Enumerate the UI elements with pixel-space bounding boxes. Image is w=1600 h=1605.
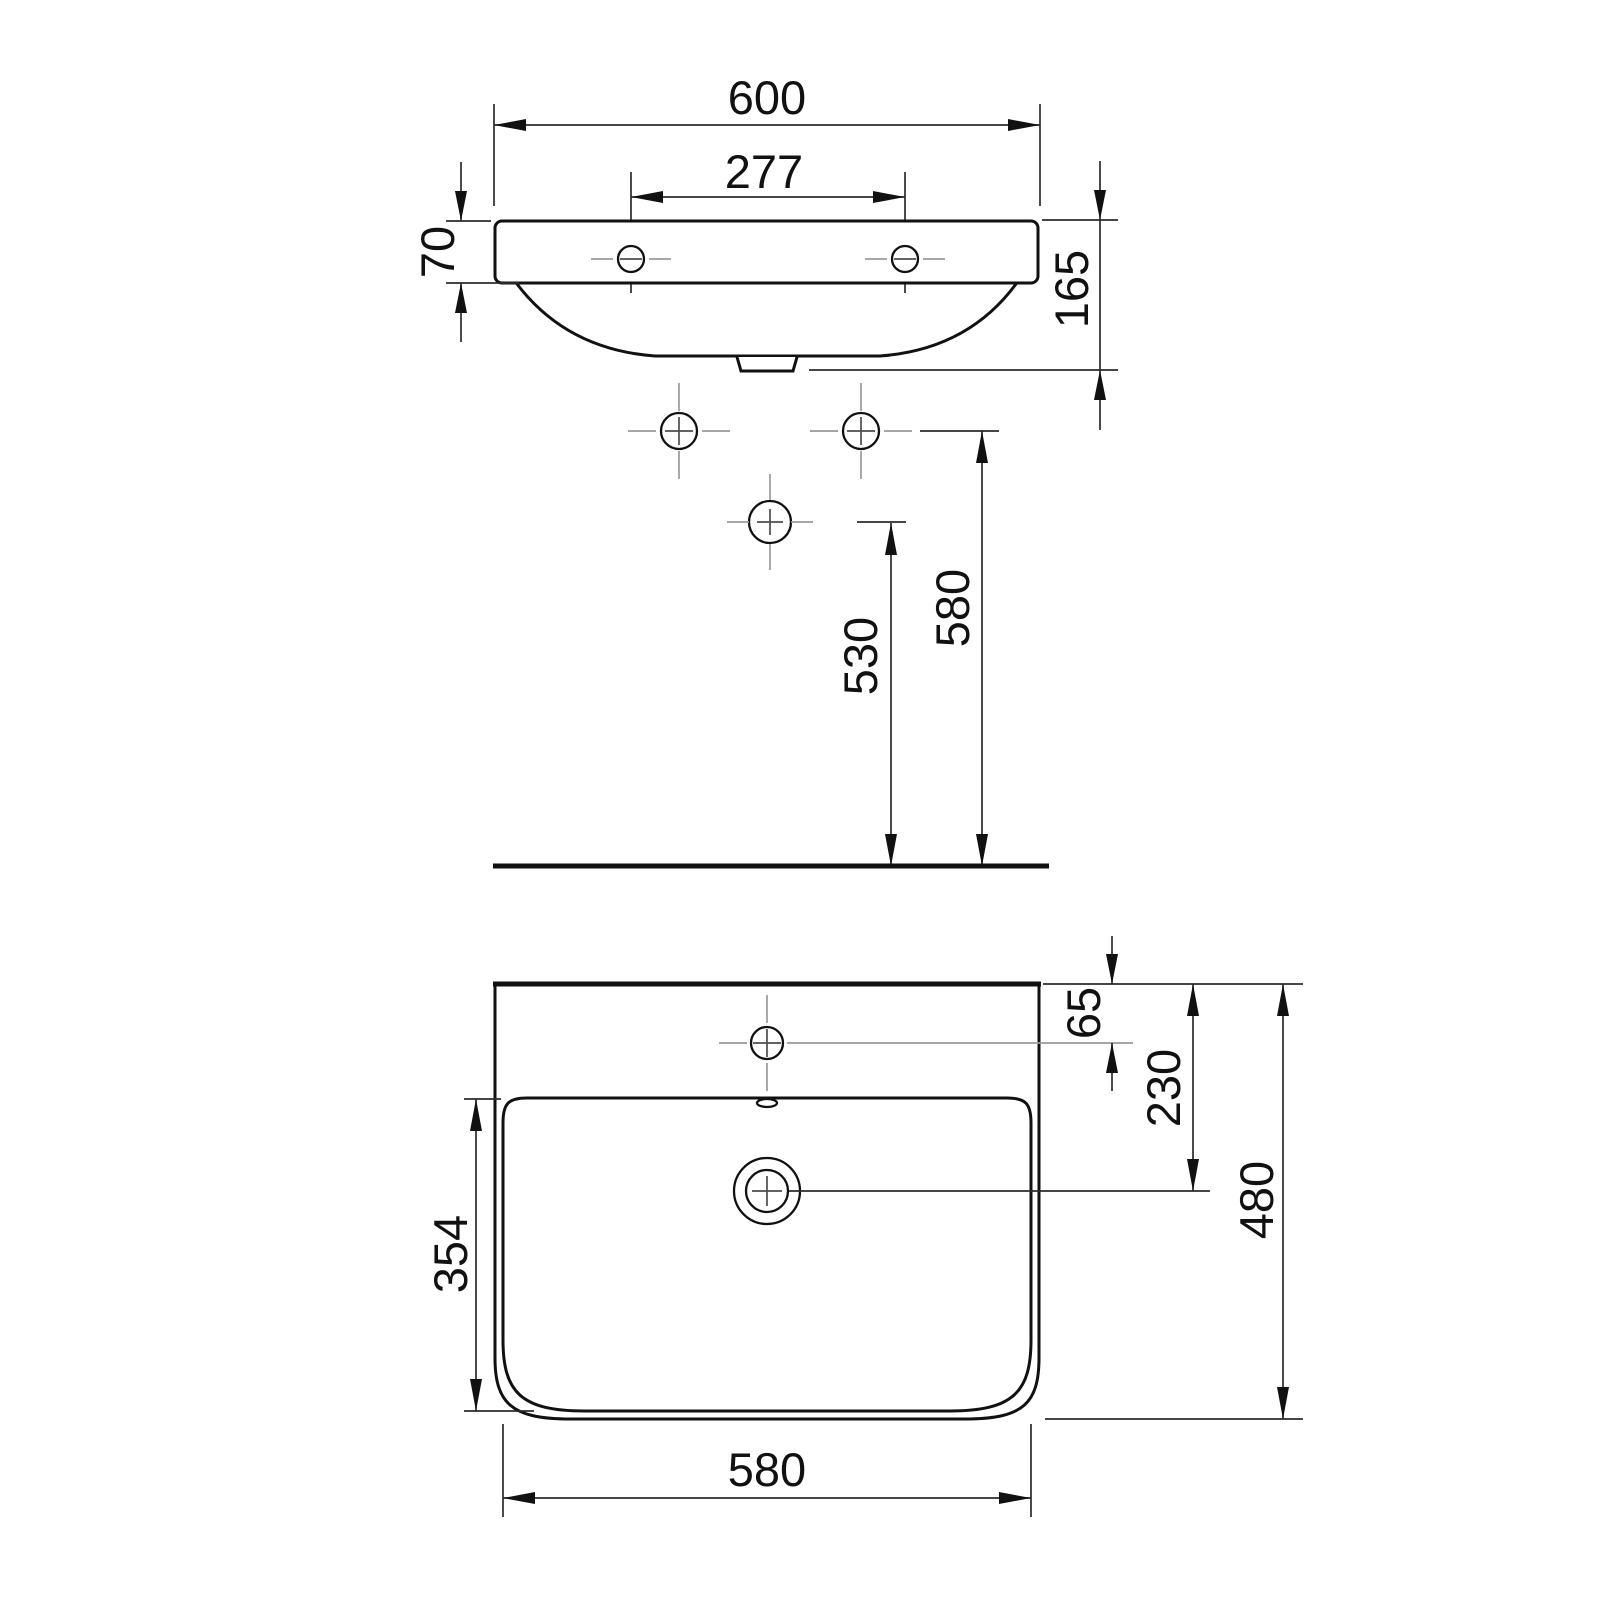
drain-outlet-stub <box>737 357 797 371</box>
arrowhead-left-icon <box>494 119 526 131</box>
arrowhead-up-icon <box>1277 984 1289 1016</box>
dim-label-580-plan: 580 <box>728 1443 806 1496</box>
dim-tap-offset-65: 65 <box>1057 936 1118 1091</box>
wall-fixing-hole-right <box>810 383 912 479</box>
arrowhead-down-icon <box>470 1379 482 1411</box>
dim-fixing-height-580: 580 <box>920 431 999 866</box>
dim-label-277: 277 <box>725 145 803 198</box>
basin-front-outline <box>495 221 1038 371</box>
dim-label-480: 480 <box>1230 1161 1283 1239</box>
arrowhead-right-icon <box>999 1492 1031 1504</box>
dim-label-600: 600 <box>728 71 806 124</box>
arrowhead-up-icon <box>455 283 467 313</box>
front-elevation-view: 600 277 <box>411 71 1118 866</box>
plan-view: 65 230 480 354 <box>424 936 1303 1517</box>
dim-label-580-front: 580 <box>926 569 979 647</box>
dim-trap-height-530: 530 <box>834 522 906 866</box>
arrowhead-right-icon <box>873 191 905 203</box>
dim-overall-height-165: 165 <box>809 161 1118 430</box>
dim-label-165: 165 <box>1045 250 1098 328</box>
overflow-slot <box>757 1099 777 1107</box>
dim-label-230: 230 <box>1137 1049 1190 1127</box>
arrowhead-up-icon <box>1094 370 1106 400</box>
basin-inner-outline <box>503 1098 1031 1411</box>
dim-drain-offset-230: 230 <box>1137 984 1199 1191</box>
dim-label-354: 354 <box>424 1215 477 1293</box>
dim-label-65: 65 <box>1057 987 1110 1039</box>
arrowhead-down-icon <box>455 191 467 221</box>
dim-basin-depth-354: 354 <box>424 1099 534 1411</box>
arrowhead-down-icon <box>885 834 897 866</box>
arrowhead-down-icon <box>1094 190 1106 220</box>
arrowhead-left-icon <box>503 1492 535 1504</box>
arrowhead-up-icon <box>885 523 897 555</box>
wall-fixing-hole-left <box>628 383 730 479</box>
arrowhead-right-icon <box>1008 119 1040 131</box>
washbasin-technical-drawing: 600 277 <box>0 0 1600 1600</box>
arrowhead-down-icon <box>976 834 988 866</box>
arrowhead-up-icon <box>1106 1043 1118 1073</box>
arrowhead-up-icon <box>1187 984 1199 1016</box>
dim-label-70: 70 <box>411 226 464 278</box>
arrowhead-left-icon <box>631 191 663 203</box>
trap-outlet-hole <box>727 474 813 570</box>
arrowhead-down-icon <box>1277 1387 1289 1419</box>
drawing-canvas: 600 277 <box>0 0 1600 1600</box>
rim-outline <box>495 221 1038 283</box>
bowl-outline <box>517 284 1016 356</box>
plan-drain-hole <box>734 1158 1210 1224</box>
arrowhead-down-icon <box>1106 954 1118 984</box>
dim-label-530: 530 <box>834 617 887 695</box>
arrowhead-down-icon <box>1187 1159 1199 1191</box>
arrowhead-up-icon <box>976 431 988 463</box>
arrowhead-up-icon <box>470 1099 482 1131</box>
dim-basin-width-580: 580 <box>503 1424 1031 1517</box>
